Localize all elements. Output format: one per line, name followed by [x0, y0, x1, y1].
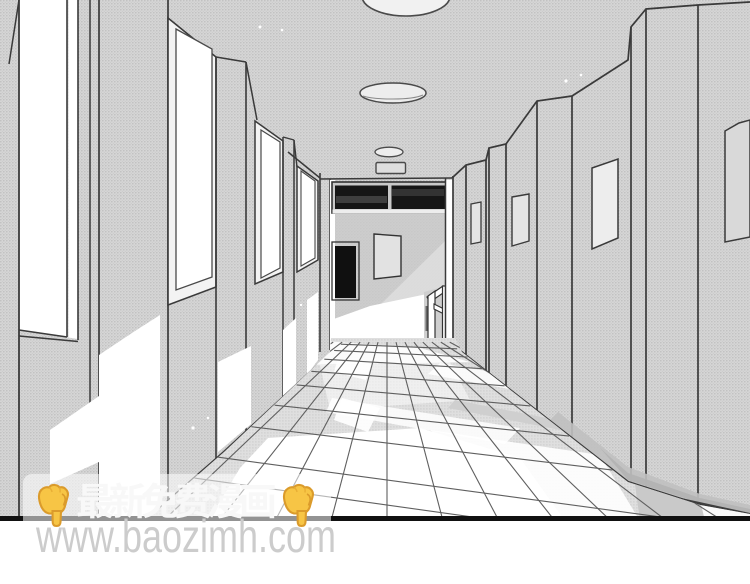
svg-text:www.baozimh.com: www.baozimh.com [35, 510, 336, 562]
